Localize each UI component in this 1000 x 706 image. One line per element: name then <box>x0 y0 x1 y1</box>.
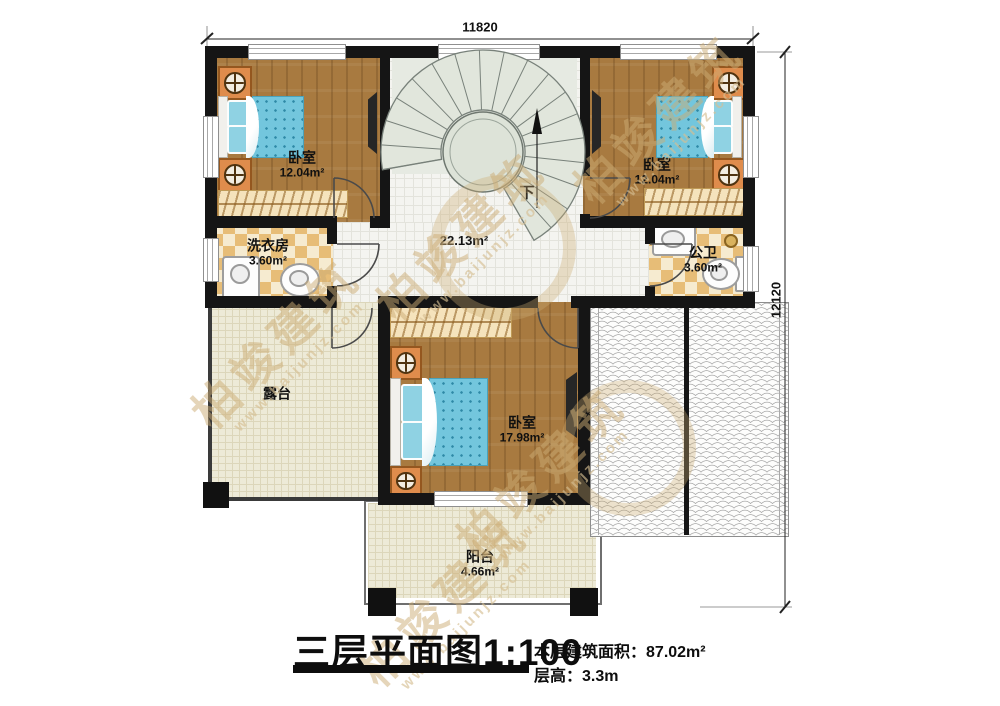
floor-area-note: 本层建筑面积：87.02m² <box>534 638 706 662</box>
room-label-bathroom: 公卫3.60m² <box>684 246 722 275</box>
dimension-right: 12120 <box>769 282 784 318</box>
door-arc <box>337 244 379 286</box>
room-label-laundry: 洗衣房3.60m² <box>247 239 289 268</box>
plan-linework <box>0 0 1000 706</box>
door-arc <box>334 178 374 218</box>
door-arc <box>332 308 372 348</box>
room-label-balcony: 阳台4.66m² <box>461 550 499 579</box>
floor-height-note: 层高：3.3m <box>534 662 618 686</box>
room-label-terrace: 露台 <box>263 387 291 402</box>
room-label-bedroom-bottom: 卧室17.98m² <box>500 416 545 445</box>
door-arc <box>590 178 630 218</box>
dimension-top: 11820 <box>462 20 497 35</box>
floor-plan: 11820 12120 卧室12.04m² 卧室12.04m² 洗衣房3.60m… <box>0 0 1000 706</box>
room-label-bedroom-top-left: 卧室12.04m² <box>280 151 325 180</box>
door-arc <box>538 308 578 348</box>
title-underline <box>293 665 529 673</box>
watermark-logo-circle <box>560 380 696 516</box>
watermark-logo-circle <box>430 175 576 321</box>
room-label-bedroom-top-right: 卧室12.04m² <box>635 158 680 187</box>
